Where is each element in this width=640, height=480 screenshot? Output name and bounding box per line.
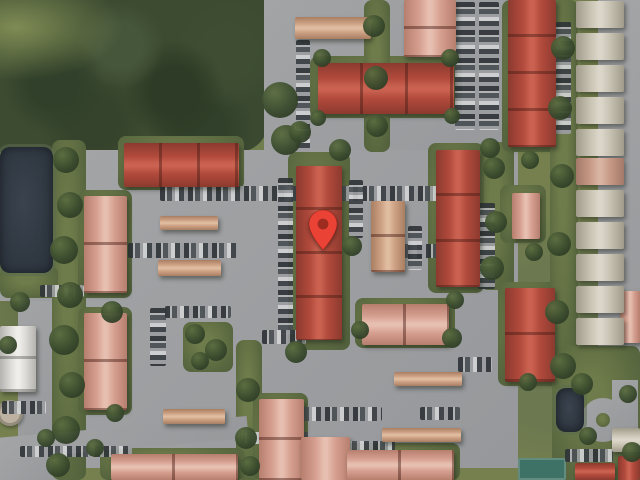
tree-canopy xyxy=(525,243,543,261)
tree-canopy xyxy=(444,108,460,124)
building-roof xyxy=(382,428,461,442)
forest-canopy xyxy=(0,0,268,152)
building-roof xyxy=(508,0,556,147)
tree-canopy xyxy=(441,49,459,67)
tree-canopy xyxy=(571,373,593,395)
parking-row xyxy=(165,306,231,318)
tree-canopy xyxy=(49,325,79,355)
tree-canopy xyxy=(191,352,209,370)
house-roof xyxy=(576,129,624,156)
map-pin-body xyxy=(309,210,337,250)
tree-canopy xyxy=(235,427,257,449)
parking-row xyxy=(278,178,293,334)
house-roof xyxy=(576,158,624,185)
building-roof xyxy=(362,304,449,345)
tree-canopy xyxy=(550,353,576,379)
building-roof xyxy=(158,260,221,276)
parking-row xyxy=(128,243,238,258)
parking-row xyxy=(2,401,46,414)
tree-canopy xyxy=(342,236,362,256)
house-roof xyxy=(576,222,624,249)
tree-canopy xyxy=(240,456,260,476)
culdesac-island xyxy=(596,413,610,427)
building-roof xyxy=(124,143,239,187)
tree-canopy xyxy=(545,300,569,324)
tree-canopy xyxy=(53,147,79,173)
building-roof xyxy=(296,166,342,340)
tree-canopy xyxy=(86,439,104,457)
building-roof xyxy=(505,288,555,382)
house-roof xyxy=(576,97,624,124)
building-roof xyxy=(575,463,615,480)
parking-row xyxy=(150,308,166,366)
building-roof xyxy=(259,399,304,480)
map-pin-dot xyxy=(318,219,329,230)
tree-canopy xyxy=(480,256,504,280)
house-roof xyxy=(576,286,624,313)
pond xyxy=(0,147,53,273)
tree-canopy xyxy=(57,282,83,308)
parking-row xyxy=(420,407,460,420)
house-roof xyxy=(576,1,624,28)
building-roof xyxy=(371,201,405,272)
tree-canopy xyxy=(329,139,351,161)
tree-canopy xyxy=(485,211,507,233)
building-roof xyxy=(347,450,454,480)
tree-canopy xyxy=(106,404,124,422)
parking-row xyxy=(408,226,422,270)
tree-canopy xyxy=(442,328,462,348)
tree-canopy xyxy=(310,110,326,126)
house-roof xyxy=(576,318,624,345)
satellite-map[interactable] xyxy=(0,0,640,480)
tree-canopy xyxy=(351,321,369,339)
building-roof xyxy=(160,216,218,230)
building-roof xyxy=(84,313,127,410)
tree-canopy xyxy=(550,164,574,188)
parking-row xyxy=(297,407,382,421)
building-roof xyxy=(111,454,238,480)
tree-canopy xyxy=(619,385,637,403)
tree-canopy xyxy=(59,372,85,398)
parking-row xyxy=(565,449,613,462)
tree-canopy xyxy=(548,96,572,120)
tree-canopy xyxy=(185,324,205,344)
building-roof xyxy=(295,17,371,39)
tree-canopy xyxy=(313,49,331,67)
building-roof xyxy=(394,372,462,386)
tree-canopy xyxy=(46,453,70,477)
tree-canopy xyxy=(57,192,83,218)
house-roof xyxy=(576,190,624,217)
tree-canopy xyxy=(364,66,388,90)
tree-canopy xyxy=(236,378,260,402)
parking-row xyxy=(458,357,492,372)
tree-canopy xyxy=(547,232,571,256)
tree-canopy xyxy=(483,157,505,179)
tree-canopy xyxy=(519,373,537,391)
tree-canopy xyxy=(622,442,640,462)
parking-row xyxy=(349,180,363,238)
tree-canopy xyxy=(37,429,55,447)
tree-canopy xyxy=(366,115,388,137)
tree-canopy xyxy=(262,82,298,118)
parking-row xyxy=(479,2,499,130)
tree-canopy xyxy=(363,15,385,37)
map-pin-icon[interactable] xyxy=(308,209,338,251)
tree-canopy xyxy=(289,121,311,143)
building-roof xyxy=(512,193,540,239)
building-roof xyxy=(163,409,225,424)
house-roof xyxy=(576,65,624,92)
tree-canopy xyxy=(579,427,597,445)
tennis-court xyxy=(518,458,566,480)
tree-canopy xyxy=(480,138,500,158)
building-roof xyxy=(436,150,480,287)
building-roof xyxy=(84,196,127,293)
house-roof xyxy=(576,33,624,60)
tree-canopy xyxy=(446,291,464,309)
tree-canopy xyxy=(10,292,30,312)
tree-canopy xyxy=(50,236,78,264)
building-roof xyxy=(301,437,350,480)
tree-canopy xyxy=(285,341,307,363)
house-roof xyxy=(576,254,624,281)
tree-canopy xyxy=(52,416,80,444)
tree-canopy xyxy=(551,36,575,60)
tree-canopy xyxy=(101,301,123,323)
tree-canopy xyxy=(521,151,539,169)
